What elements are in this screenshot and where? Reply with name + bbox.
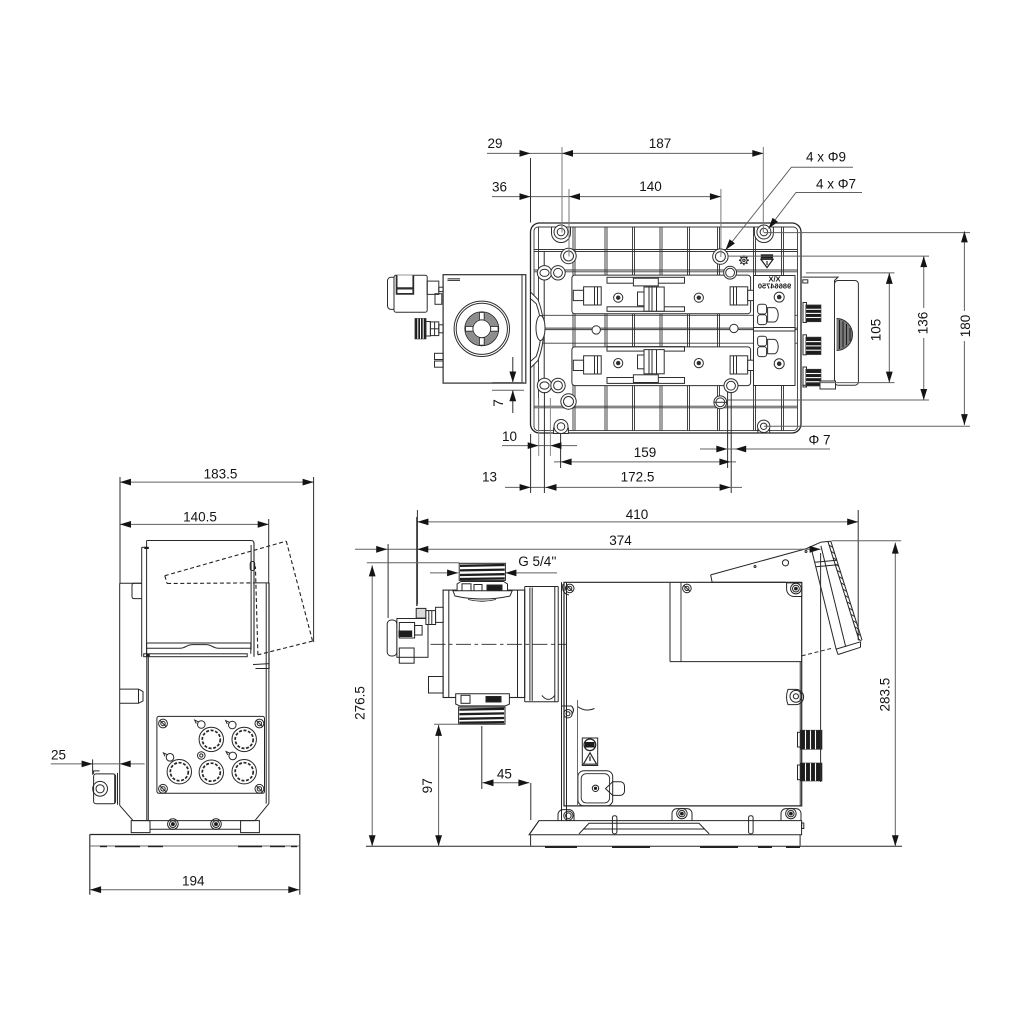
svg-text:13: 13: [482, 470, 497, 485]
svg-text:105: 105: [868, 319, 883, 342]
svg-text:4 x Φ9: 4 x Φ9: [806, 150, 846, 165]
svg-text:140: 140: [639, 179, 662, 194]
svg-text:374: 374: [609, 533, 632, 548]
svg-text:Φ 7: Φ 7: [809, 432, 831, 447]
svg-text:172.5: 172.5: [621, 470, 655, 485]
svg-text:4 x Φ7: 4 x Φ7: [816, 177, 856, 192]
svg-text:183.5: 183.5: [204, 467, 238, 482]
svg-text:10: 10: [502, 429, 517, 444]
svg-text:36: 36: [492, 180, 507, 195]
svg-text:187: 187: [649, 136, 672, 151]
svg-text:180: 180: [958, 315, 973, 338]
svg-text:283.5: 283.5: [878, 678, 893, 712]
svg-text:194: 194: [182, 873, 205, 888]
svg-text:45: 45: [497, 766, 512, 781]
svg-text:276.5: 276.5: [353, 686, 368, 720]
svg-text:29: 29: [488, 136, 503, 151]
svg-text:97: 97: [420, 778, 435, 793]
svg-text:98664750: 98664750: [758, 282, 791, 291]
svg-text:140.5: 140.5: [183, 510, 217, 525]
svg-text:159: 159: [634, 445, 657, 460]
svg-text:7: 7: [491, 399, 506, 407]
svg-text:G 5/4'': G 5/4'': [518, 554, 556, 569]
svg-text:25: 25: [51, 748, 66, 763]
svg-text:410: 410: [626, 507, 649, 522]
svg-text:136: 136: [916, 312, 931, 335]
